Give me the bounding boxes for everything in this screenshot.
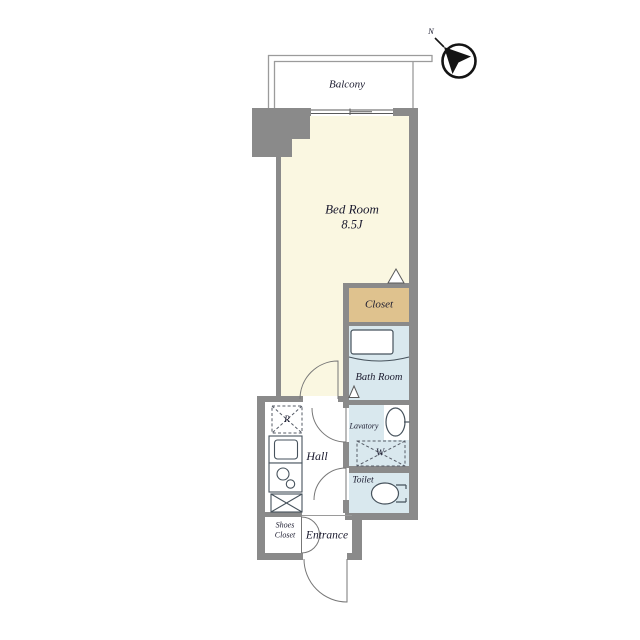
toilet-door-arc [314,468,346,500]
stove [269,463,302,492]
bedroom-size: 8.5J [325,217,379,232]
entrance-door-arc [304,559,347,602]
compass-north-label: N [428,27,434,37]
kitchen-sink [269,436,302,463]
bedroom-name: Bed Room [325,202,379,218]
bedroom-label: Bed Room 8.5J [325,202,379,233]
lavatory-basin [384,405,410,440]
compass [435,38,476,78]
toilet-label: Toilet [352,476,373,487]
refrigerator-symbol: R [284,414,290,424]
hall-label: Hall [306,450,327,464]
closet-label: Closet [365,299,393,312]
lavatory-door-arc [312,408,346,442]
bathroom-label: Bath Room [356,372,403,384]
washer-symbol: W [376,447,384,459]
entrance-label: Entrance [306,529,348,542]
bathtub [351,330,393,354]
shoes-closet-label: Shoes Closet [275,520,295,539]
balcony-label: Balcony [329,79,365,92]
floor-plan-drawing [0,0,640,640]
storage-box [271,494,302,512]
lavatory-label: Lavatory [350,421,379,430]
shoes-closet-line2: Closet [275,530,295,540]
floor-plan: Balcony Bed Room 8.5J Closet Bath Room L… [0,0,640,640]
shoes-closet-line1: Shoes [275,520,295,530]
window [311,108,393,116]
